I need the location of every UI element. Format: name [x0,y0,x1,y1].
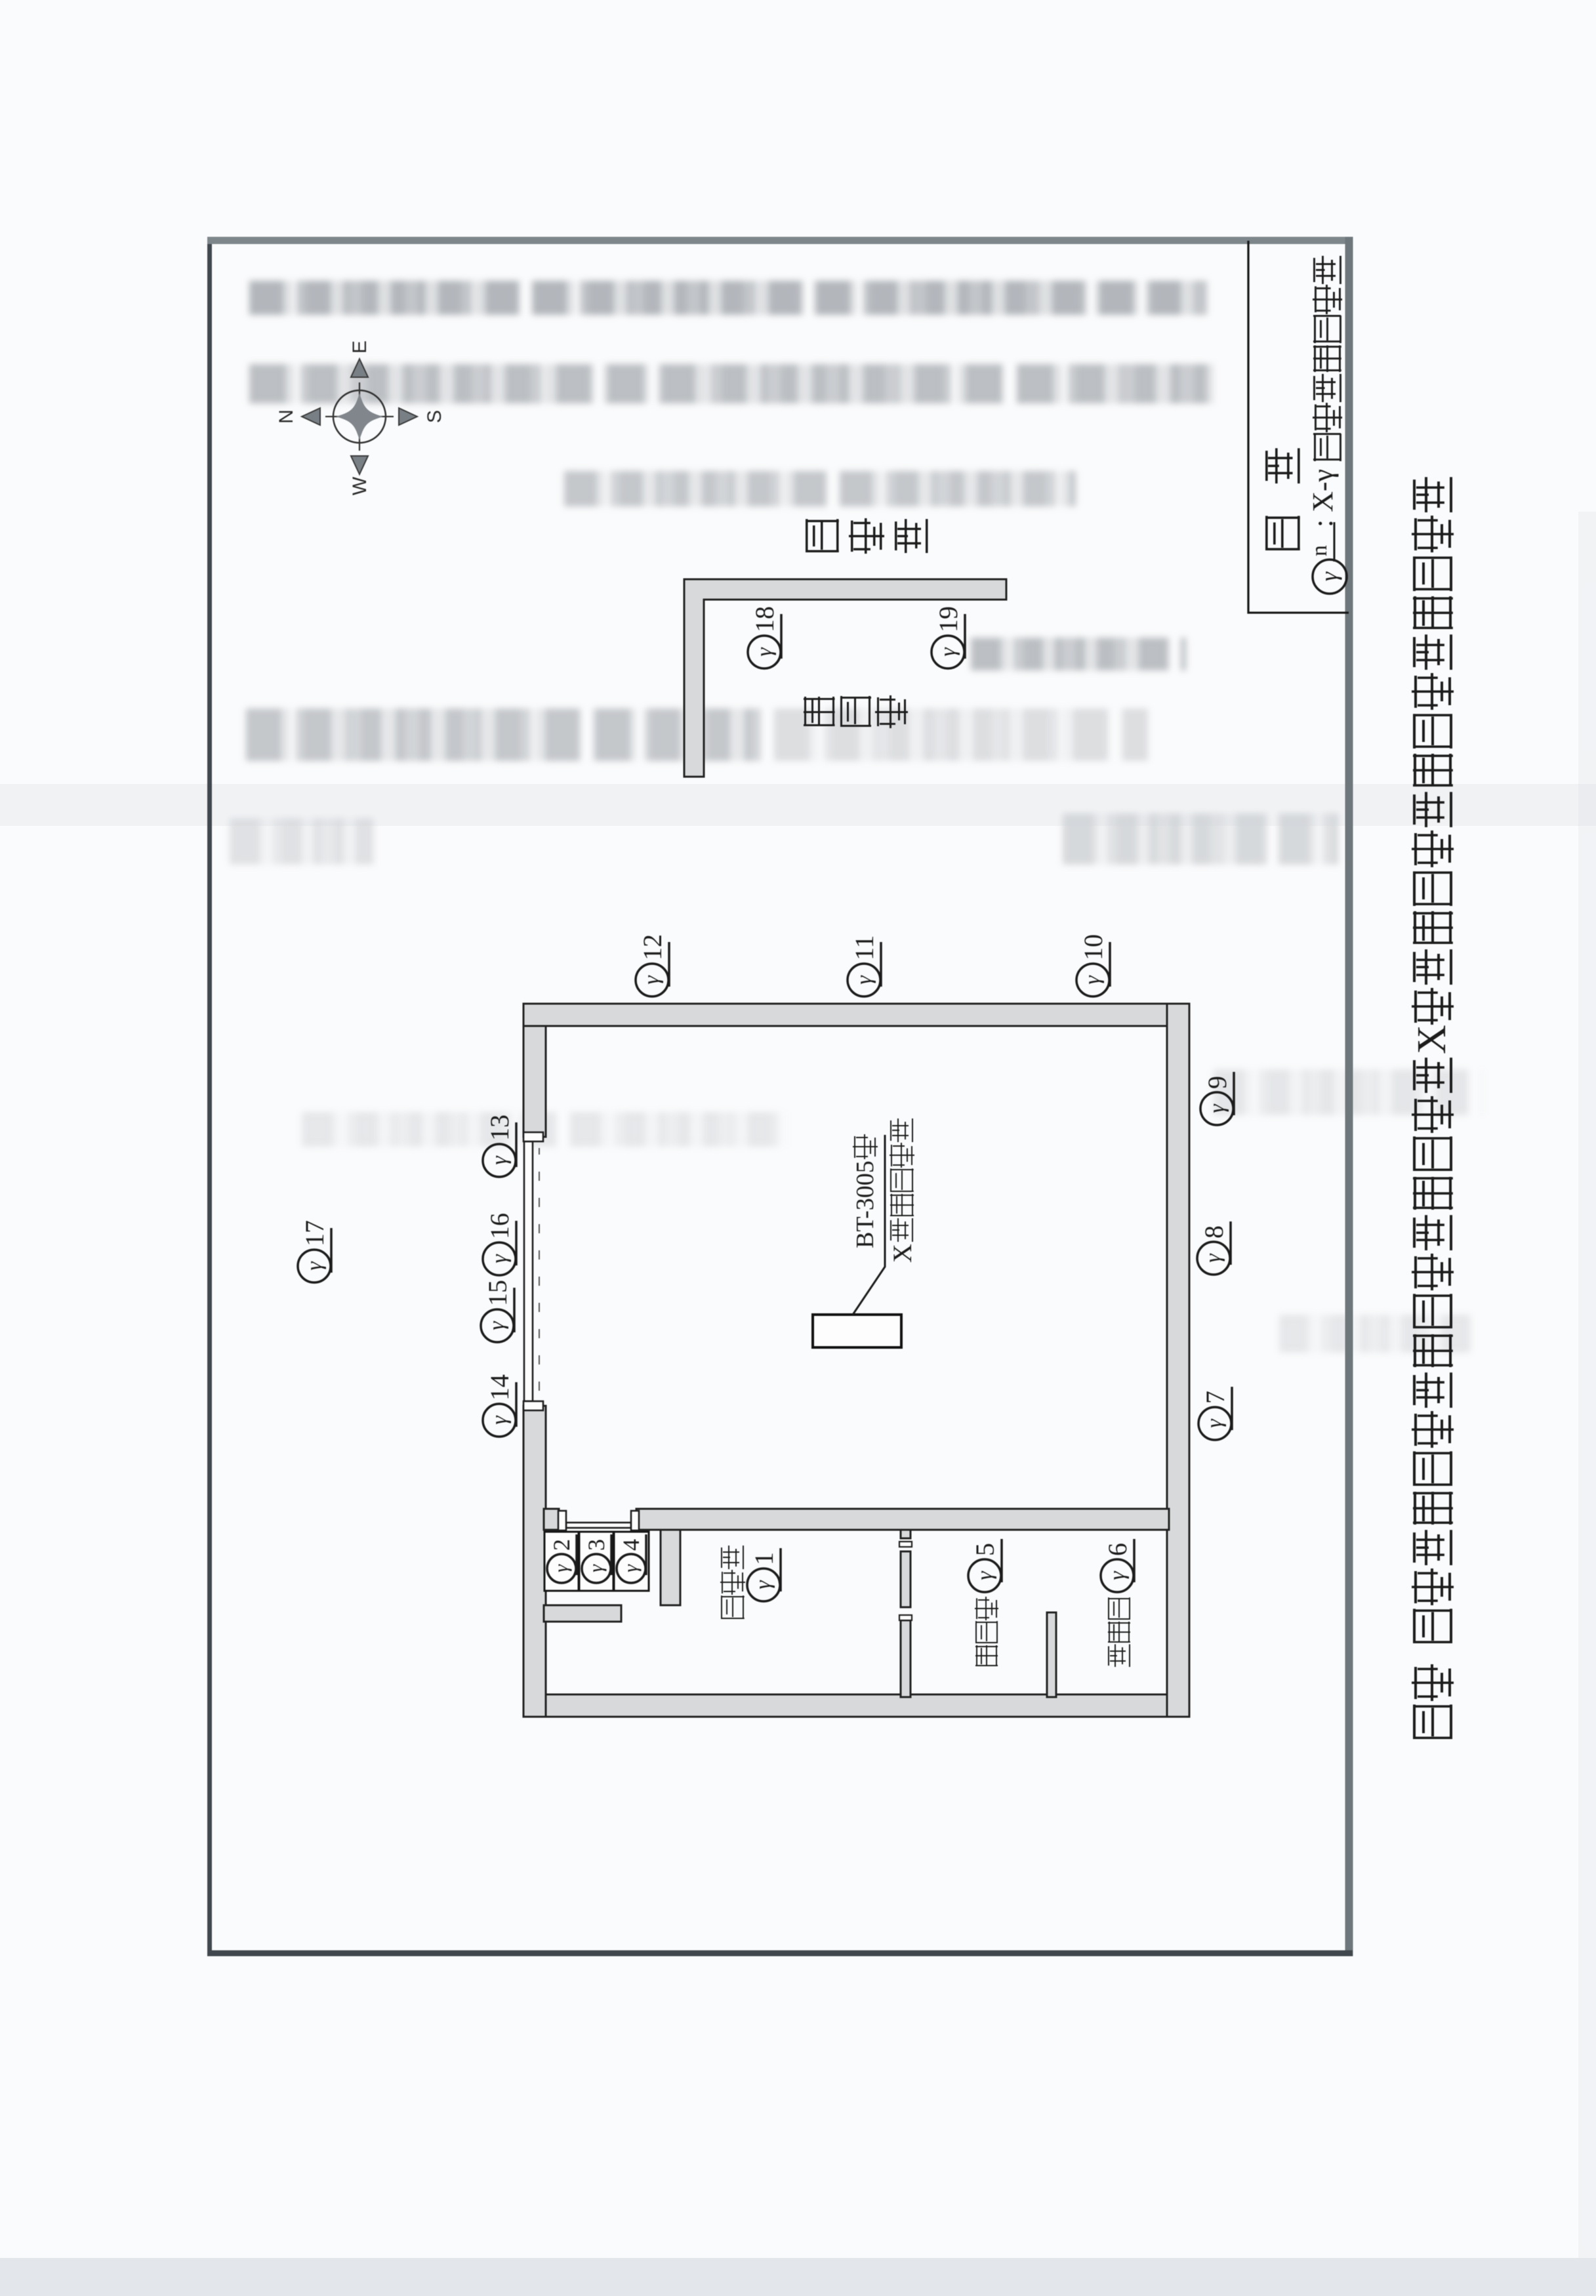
svg-text:γ: γ [487,1254,512,1263]
svg-text:12: 12 [638,934,667,960]
svg-text:γ: γ [550,1564,572,1572]
svg-text:N: N [276,409,297,424]
svg-text:γ: γ [852,975,876,985]
svg-text:γ: γ [485,1321,509,1330]
svg-text:1: 1 [749,1552,779,1565]
svg-text:9: 9 [1202,1076,1232,1089]
svg-text:7: 7 [1200,1391,1230,1404]
svg-text:15: 15 [483,1280,512,1306]
svg-text:17: 17 [300,1220,329,1246]
svg-text:γ: γ [936,647,960,657]
svg-text:γ: γ [752,647,777,657]
svg-text:γ: γ [302,1261,327,1271]
svg-text:E: E [349,340,371,354]
svg-text:γ: γ [487,1415,512,1425]
svg-text:2: 2 [548,1539,575,1551]
svg-text:γ: γ [1080,975,1105,985]
svg-text:γ: γ [585,1564,607,1572]
svg-text:γ: γ [751,1580,775,1589]
svg-text:6: 6 [1103,1543,1132,1556]
svg-text:10: 10 [1078,934,1108,960]
svg-text:γ: γ [1105,1570,1130,1580]
svg-text:19: 19 [933,606,963,632]
svg-text:n: n [1307,545,1332,556]
svg-text:γ: γ [640,975,664,985]
svg-text:14: 14 [485,1374,514,1401]
svg-text:5: 5 [970,1543,1000,1556]
svg-text:13: 13 [485,1115,514,1141]
svg-text:γ: γ [487,1155,512,1165]
svg-text:8: 8 [1199,1225,1229,1239]
svg-text:18: 18 [750,606,779,632]
svg-text:3: 3 [583,1539,609,1551]
svg-text:γ: γ [1201,1253,1225,1263]
svg-text:γ: γ [620,1564,642,1572]
svg-text:γ: γ [1205,1103,1229,1113]
svg-text:4: 4 [618,1539,644,1551]
svg-text:γ: γ [1316,571,1342,581]
svg-text:16: 16 [485,1213,514,1239]
svg-text:W: W [349,476,371,495]
svg-text:11: 11 [849,935,879,960]
svg-text:γ: γ [1202,1418,1227,1428]
svg-text:γ: γ [973,1570,997,1580]
svg-text:S: S [424,410,445,423]
